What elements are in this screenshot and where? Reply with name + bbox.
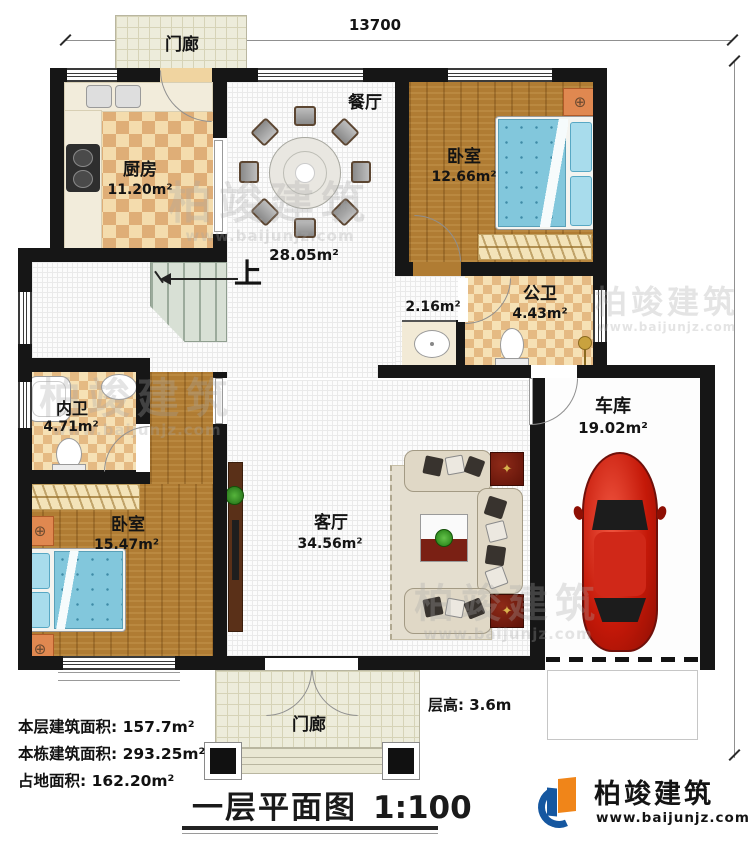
brand-url: www.baijunjz.com — [596, 811, 746, 827]
bed-pillow — [570, 122, 592, 172]
garage-label: 车库 — [584, 397, 642, 418]
console-plant — [225, 486, 244, 505]
garage-area: 19.02m² — [578, 420, 648, 437]
bed-sheet-fold — [540, 119, 568, 227]
dining-chair — [294, 106, 316, 126]
car-windshield — [592, 500, 648, 530]
wall — [18, 248, 227, 262]
window — [67, 68, 117, 82]
sofa-cushion — [422, 596, 443, 617]
dining-label: 餐厅 — [333, 94, 397, 114]
tv — [232, 520, 239, 580]
watermark-url: www.baijunjz.com — [592, 321, 742, 333]
stats-line-3: 占地面积: 162.20m² — [18, 769, 174, 791]
coffee-table-plant — [435, 529, 453, 547]
basin-drain — [430, 342, 434, 346]
dining-chair — [239, 161, 259, 183]
kitchen-area: 11.20m² — [102, 182, 178, 198]
floor-drain — [578, 336, 592, 350]
window — [258, 68, 363, 82]
bedroom-top-area: 12.66m² — [425, 169, 503, 185]
window — [63, 656, 175, 670]
window — [18, 292, 32, 344]
bed-pillow — [30, 592, 50, 628]
wash-area-label: 2.16m² — [400, 299, 466, 315]
wardrobe — [28, 484, 140, 510]
stairs-up-label: 上 — [230, 258, 266, 290]
hall-area: 28.05m² — [258, 247, 350, 264]
public-bath-label: 公卫 — [513, 285, 567, 305]
window — [18, 382, 32, 428]
toilet-bowl — [500, 328, 524, 362]
porch-column-core — [210, 748, 236, 774]
inner-bath-area: 4.71m² — [42, 419, 100, 435]
dining-table-center — [295, 163, 315, 183]
door-opening — [413, 262, 461, 276]
kitchen-label: 厨房 — [108, 161, 172, 181]
window — [593, 290, 607, 342]
porch-bottom-label: 门廊 — [282, 716, 336, 736]
side-table: ✦ — [490, 594, 524, 628]
bedroom-top-label: 卧室 — [432, 148, 496, 168]
wall — [395, 82, 409, 262]
stats-line-2: 本栋建筑面积: 293.25m² — [18, 742, 205, 764]
porch-top-label: 门廊 — [147, 36, 217, 56]
living-area: 34.56m² — [297, 536, 363, 552]
kitchen-sink — [115, 85, 141, 108]
porch-column-core — [388, 748, 414, 774]
washbasin — [101, 374, 137, 400]
side-table: ✦ — [490, 452, 524, 486]
floor-height-note: 层高: 3.6m — [428, 697, 538, 714]
sofa-cushion — [445, 598, 466, 619]
garage-door-dashed — [546, 657, 699, 662]
watermark-text: 柏竣建筑 — [592, 286, 742, 318]
dining-chair — [351, 161, 371, 183]
bed-sheet-fold — [54, 551, 80, 629]
entry-door-opening — [265, 658, 358, 670]
brand-logo-icon — [538, 776, 588, 830]
window — [448, 68, 552, 82]
wall — [700, 365, 715, 670]
bed-pillow — [30, 553, 50, 589]
window-sill — [58, 672, 180, 681]
page-title: 一层平面图 — [192, 782, 357, 827]
nightstand: ⊕ — [563, 88, 597, 116]
door-leaf — [215, 378, 223, 424]
wall — [25, 470, 150, 484]
title-underline — [182, 826, 438, 830]
logo-building-orange — [558, 777, 576, 813]
sofa-cushion — [422, 455, 443, 476]
stats-line-1: 本层建筑面积: 157.7m² — [18, 715, 195, 737]
door-leaf — [214, 140, 223, 232]
public-bath-area: 4.43m² — [510, 306, 570, 322]
dining-chair — [294, 218, 316, 238]
stove-burner — [73, 170, 93, 188]
top-dimension-label: 13700 — [335, 17, 415, 34]
car-rear-window — [594, 598, 646, 622]
sofa-cushion — [485, 545, 506, 566]
wall — [456, 320, 465, 367]
drain-stem — [584, 349, 586, 366]
floor-plan: 13700 13620 ⊕ ⊕ — [0, 0, 750, 845]
living-label: 客厅 — [304, 514, 358, 534]
scale-label: 1:100 — [373, 790, 472, 826]
brand-name: 柏竣建筑 — [594, 779, 744, 810]
sofa-cushion — [445, 455, 466, 476]
garage-apron — [547, 670, 698, 740]
bed-pillow — [570, 176, 592, 226]
right-dimension-line — [734, 62, 735, 758]
inner-bath-label: 内卫 — [48, 400, 96, 418]
kitchen-sink — [86, 85, 112, 108]
car-roof — [594, 532, 646, 596]
wall — [25, 358, 150, 372]
stairs-direction-line — [170, 278, 238, 280]
bedroom-left-vestibule-floor — [150, 372, 213, 484]
logo-building-blue — [547, 787, 557, 816]
bedroom-left-label: 卧室 — [101, 516, 155, 536]
title-block: 一层平面图 1:100 — [192, 782, 472, 827]
wardrobe — [478, 234, 592, 260]
porch-steps — [220, 748, 404, 774]
title-underline-thin — [182, 833, 438, 834]
watermark: 柏竣建筑 www.baijunjz.com — [592, 286, 742, 333]
door-opening — [531, 365, 577, 378]
bedroom-left-area: 15.47m² — [94, 537, 158, 553]
wall — [50, 68, 64, 262]
stove-burner — [73, 149, 93, 167]
